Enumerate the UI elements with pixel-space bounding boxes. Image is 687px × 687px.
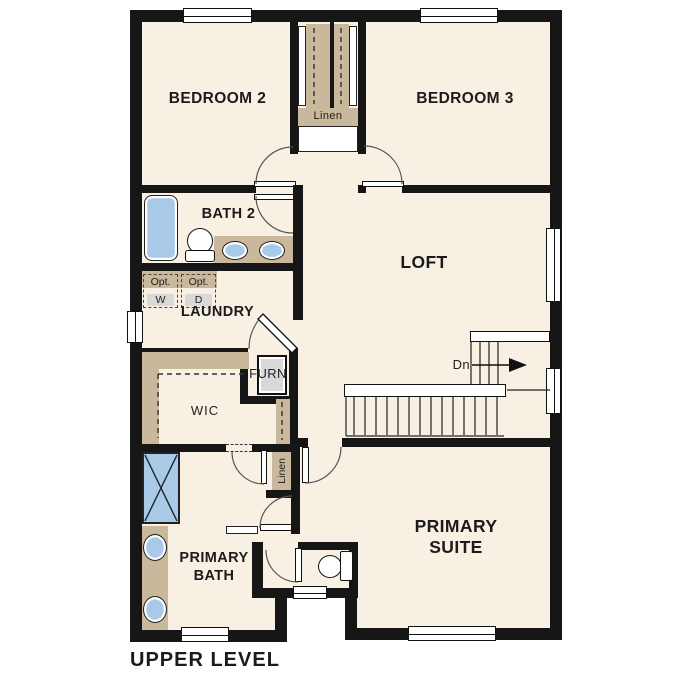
window-bedroom3-top (420, 8, 498, 23)
bath2-tub (144, 195, 178, 261)
window-bedroom2-top (183, 8, 252, 23)
stairs-down-label: Dn (444, 357, 470, 373)
closet-shelf-bed3 (334, 24, 349, 108)
wall-notch-right (345, 596, 357, 632)
optional-washer: Opt. W (143, 274, 178, 308)
room-label-furnace: FURN (238, 366, 298, 382)
wall-linen-bottom (266, 490, 300, 498)
primary-linen-shelf: Linen (272, 452, 292, 490)
room-label-bedroom3: BEDROOM 3 (377, 90, 553, 109)
primary-linen-label: Linen (276, 458, 288, 484)
window-wc-bottom (293, 586, 327, 599)
washer-opt-label: Opt. (151, 276, 171, 288)
room-label-primary-bath: PRIMARY BATH (155, 550, 273, 585)
bath2-toilet-base (185, 250, 215, 262)
wall-bed2-bath2 (142, 185, 256, 193)
bath2-sink-right (259, 241, 285, 260)
wall-bath2-bottom (142, 263, 303, 271)
stairs-railing-main (344, 384, 506, 397)
room-label-primary-suite: PRIMARY SUITE (380, 516, 532, 559)
linen-door-leaf (261, 450, 267, 484)
primary-shower (142, 452, 180, 524)
wc-toilet-bowl (318, 555, 342, 578)
bed3-door-leaf (362, 181, 404, 187)
floor-plan: Linen Linen (0, 0, 687, 687)
exterior-notch (287, 598, 345, 642)
wall-linen-right (291, 444, 300, 534)
primary-bath-line1: PRIMARY (155, 550, 273, 568)
primary-suite-line1: PRIMARY (380, 516, 532, 537)
bed2-door-leaf (254, 181, 296, 187)
room-label-bath2: BATH 2 (181, 206, 276, 224)
wall-laundry-right (293, 263, 303, 320)
wall-wic-bottom-left (142, 444, 226, 452)
primary-bath-door-leaf (260, 524, 292, 531)
window-loft-right-lower (546, 368, 561, 414)
room-label-loft: LOFT (371, 252, 477, 273)
wall-notch-left (275, 592, 287, 642)
wic-shelf-right (276, 399, 290, 444)
closet-door-bed3 (349, 26, 357, 106)
primary-suite-door-leaf (302, 447, 309, 483)
wall-bath2-right (293, 185, 303, 270)
optional-dryer: Opt. D (181, 274, 216, 308)
wall-loft-primary (342, 438, 550, 447)
wall-wc-top (298, 542, 352, 550)
primary-sink-bottom (143, 596, 167, 623)
wall-hall-west (289, 348, 298, 448)
window-primary-bath-bottom (181, 627, 229, 642)
window-loft-right-upper (546, 228, 561, 302)
wall-wic-bottom-right (252, 444, 292, 452)
room-label-wic: WIC (170, 403, 240, 419)
wic-shelf-left (142, 369, 159, 444)
dryer-opt-label: Opt. (189, 276, 209, 288)
wall-closet-right (358, 22, 366, 154)
wall-closet-left (290, 22, 298, 154)
wall-loft-primary-left (296, 438, 308, 447)
hall-linen-shelf: Linen (298, 108, 358, 126)
closet-shelf-bed2 (306, 24, 330, 108)
hall-linen-label: Linen (314, 110, 343, 123)
bath2-sink-left (222, 241, 248, 260)
bath2-door-leaf (254, 194, 296, 200)
primary-bath-line2: BATH (155, 568, 273, 586)
wall-bed3-loft (402, 185, 550, 193)
wc-door-leaf (295, 548, 302, 582)
primary-bath-cased-opening (226, 526, 258, 534)
room-label-bedroom2: BEDROOM 2 (130, 90, 305, 109)
hall-linen-front (298, 126, 358, 152)
window-primary-suite-bottom (408, 626, 496, 641)
plan-title: UPPER LEVEL (130, 648, 370, 672)
wic-shelf-top (142, 352, 249, 369)
room-label-laundry: LAUNDRY (155, 304, 280, 322)
wc-toilet-tank (340, 551, 353, 581)
stairs-railing-upper (470, 331, 550, 342)
primary-suite-line2: SUITE (380, 537, 532, 558)
window-laundry-left (127, 311, 143, 343)
wic-cased-opening (226, 444, 252, 452)
